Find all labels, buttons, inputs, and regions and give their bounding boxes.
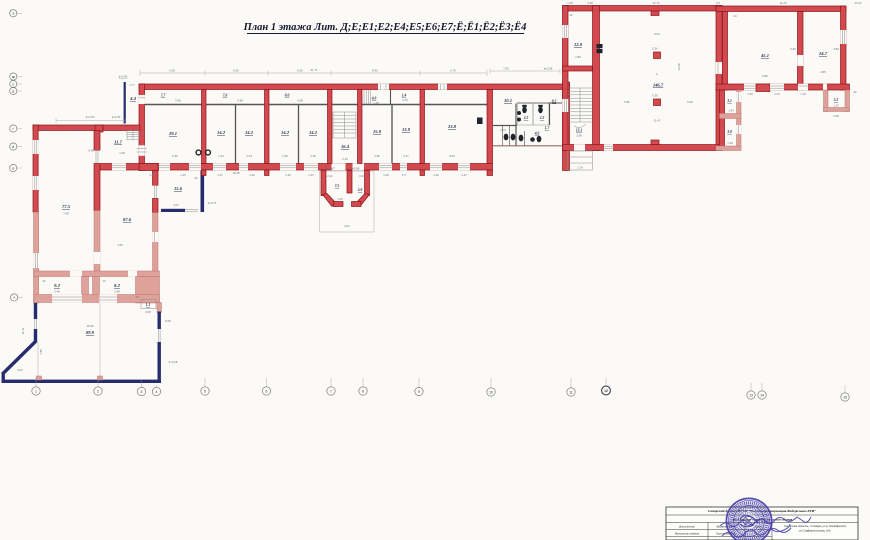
- svg-text:Должность: Должность: [678, 525, 695, 529]
- svg-text:18.28: 18.28: [233, 171, 240, 175]
- svg-text:3.02: 3.02: [17, 368, 23, 372]
- svg-text:15.8: 15.8: [373, 129, 382, 134]
- svg-text:2.70: 2.70: [500, 128, 506, 132]
- svg-text:13: 13: [749, 393, 753, 397]
- svg-text:2.41: 2.41: [327, 174, 333, 178]
- svg-text:5.96: 5.96: [175, 99, 181, 103]
- svg-text:11.41: 11.41: [21, 327, 25, 334]
- svg-text:Самарская область, г.Самара, у: Самарская область, г.Самара, ул.ж Октябр…: [784, 524, 847, 528]
- svg-text:1.28: 1.28: [567, 1, 573, 5]
- svg-text:12.8: 12.8: [574, 42, 583, 47]
- svg-text:7.68: 7.68: [63, 212, 69, 216]
- svg-text:4: 4: [156, 390, 158, 394]
- svg-text:4.07: 4.07: [173, 203, 179, 207]
- svg-text:7.09: 7.09: [503, 67, 509, 71]
- svg-text:12: 12: [102, 279, 106, 283]
- svg-text:8.08: 8.08: [165, 319, 171, 323]
- svg-text:24: 24: [733, 14, 737, 18]
- svg-text:Ж: Ж: [11, 75, 15, 79]
- svg-text:1.30: 1.30: [747, 92, 753, 96]
- svg-text:в=2.88: в=2.88: [351, 167, 360, 171]
- svg-text:3а: 3а: [194, 176, 198, 180]
- svg-text:6.89: 6.89: [762, 74, 768, 78]
- svg-text:0.97: 0.97: [359, 174, 365, 178]
- svg-text:2.14: 2.14: [577, 165, 583, 169]
- svg-text:1.10: 1.10: [800, 92, 806, 96]
- svg-text:6.5: 6.5: [716, 1, 720, 5]
- svg-text:5: 5: [204, 389, 206, 393]
- svg-text:14.2: 14.2: [245, 130, 254, 135]
- svg-text:0.34: 0.34: [652, 47, 658, 51]
- svg-text:13.9: 13.9: [402, 127, 411, 132]
- svg-text:1.47: 1.47: [308, 173, 314, 177]
- svg-text:А: А: [13, 296, 15, 300]
- svg-text:0.36: 0.36: [652, 94, 658, 98]
- svg-text:14.2: 14.2: [309, 130, 318, 135]
- svg-text:1.47: 1.47: [833, 104, 839, 108]
- svg-text:1.77: 1.77: [129, 83, 135, 87]
- svg-text:2.96: 2.96: [374, 154, 380, 158]
- svg-text:ул.Симферопольская, д.№: ул.Симферопольская, д.№: [798, 529, 831, 533]
- svg-text:5.98: 5.98: [297, 99, 303, 103]
- svg-text:12.88: 12.88: [677, 63, 681, 70]
- svg-text:7.5: 7.5: [335, 184, 340, 188]
- svg-text:4.6: 4.6: [534, 132, 540, 136]
- svg-text:1.48: 1.48: [119, 151, 125, 155]
- svg-text:16.4: 16.4: [341, 144, 350, 149]
- svg-text:77.5: 77.5: [62, 204, 71, 209]
- svg-text:2.2: 2.2: [523, 116, 529, 120]
- svg-text:1.44: 1.44: [774, 92, 780, 96]
- svg-text:1: 1: [35, 389, 37, 393]
- svg-text:3: 3: [141, 390, 143, 394]
- svg-text:8.2: 8.2: [114, 283, 120, 288]
- svg-text:11.7: 11.7: [114, 140, 122, 145]
- svg-text:10.1: 10.1: [504, 98, 512, 103]
- svg-text:1.47: 1.47: [461, 173, 467, 177]
- svg-text:14.2: 14.2: [281, 130, 290, 135]
- svg-text:8.90: 8.90: [372, 69, 378, 73]
- svg-text:2.45: 2.45: [310, 154, 316, 158]
- svg-text:11.47: 11.47: [654, 119, 661, 123]
- svg-text:10.22: 10.22: [855, 1, 862, 5]
- svg-text:14.2: 14.2: [217, 130, 226, 135]
- svg-text:2.68: 2.68: [145, 310, 151, 314]
- svg-text:1.7: 1.7: [545, 126, 550, 130]
- svg-text:12: 12: [604, 389, 608, 393]
- svg-text:1.40: 1.40: [180, 173, 186, 177]
- svg-text:5.35: 5.35: [172, 154, 178, 158]
- svg-text:14: 14: [760, 393, 764, 397]
- svg-text:5.98: 5.98: [237, 99, 243, 103]
- svg-text:6.80: 6.80: [73, 128, 79, 132]
- svg-text:1.47: 1.47: [217, 173, 223, 177]
- svg-text:6.38: 6.38: [587, 1, 593, 5]
- svg-text:1.1: 1.1: [146, 303, 151, 307]
- svg-text:2.88: 2.88: [42, 128, 48, 132]
- svg-text:1.48: 1.48: [149, 173, 155, 177]
- svg-text:1.40: 1.40: [285, 173, 291, 177]
- svg-text:146.7: 146.7: [653, 83, 664, 88]
- svg-text:Б: Б: [12, 166, 14, 170]
- svg-text:7.6: 7.6: [223, 94, 228, 98]
- svg-text:40: 40: [853, 90, 857, 94]
- svg-text:5.90: 5.90: [687, 100, 693, 104]
- svg-text:Начальник отдела: Начальник отдела: [674, 532, 700, 536]
- svg-text:План 1 этажа Лит. Д;Е;Е1;Е2;Е4: План 1 этажа Лит. Д;Е;Е1;Е2;Е4;Е5;Е6;Е7;…: [243, 20, 527, 33]
- svg-text:2.2: 2.2: [539, 116, 545, 120]
- svg-text:1.4: 1.4: [402, 94, 407, 98]
- svg-text:24.7: 24.7: [818, 51, 828, 56]
- svg-text:2.40: 2.40: [402, 98, 408, 102]
- svg-text:10: 10: [489, 390, 493, 394]
- svg-text:9.2: 9.2: [54, 283, 60, 288]
- svg-text:1.25: 1.25: [337, 197, 343, 201]
- svg-text:4.83: 4.83: [833, 47, 839, 51]
- svg-text:5.0: 5.0: [358, 188, 363, 192]
- svg-text:6: 6: [266, 389, 268, 393]
- svg-text:22: 22: [569, 13, 573, 17]
- svg-text:2.89: 2.89: [575, 55, 581, 59]
- svg-text:87.6: 87.6: [123, 217, 132, 222]
- svg-text:1.54: 1.54: [728, 109, 734, 113]
- svg-text:6.30: 6.30: [297, 69, 303, 73]
- svg-text:15.6: 15.6: [174, 186, 183, 191]
- svg-text:12.70: 12.70: [653, 1, 660, 5]
- svg-text:4.0: 4.0: [371, 97, 377, 101]
- svg-text:6.60: 6.60: [790, 47, 796, 51]
- svg-text:13.1: 13.1: [576, 129, 582, 133]
- svg-text:45.1: 45.1: [760, 53, 769, 58]
- svg-text:1.39: 1.39: [727, 141, 733, 145]
- svg-text:2.34: 2.34: [342, 157, 348, 161]
- svg-text:8.2: 8.2: [552, 100, 557, 104]
- svg-text:3.48: 3.48: [54, 290, 60, 294]
- svg-text:7.88: 7.88: [39, 349, 43, 355]
- svg-text:1.40: 1.40: [249, 173, 255, 177]
- svg-text:3.02: 3.02: [344, 224, 350, 228]
- svg-text:0.94: 0.94: [654, 32, 660, 36]
- svg-text:Е: Е: [12, 82, 14, 86]
- svg-text:2.09: 2.09: [833, 114, 839, 118]
- svg-text:6.28: 6.28: [169, 69, 175, 73]
- svg-text:В: В: [12, 145, 14, 149]
- svg-text:5.94: 5.94: [449, 154, 455, 158]
- svg-text:в=2.50: в=2.50: [112, 115, 121, 119]
- svg-text:2.47: 2.47: [403, 154, 409, 158]
- svg-text:11: 11: [569, 390, 573, 394]
- svg-text:7: 7: [330, 389, 332, 393]
- svg-text:в=3.28: в=3.28: [169, 360, 178, 364]
- svg-text:4.4: 4.4: [129, 96, 136, 101]
- svg-text:в=2.75: в=2.75: [208, 201, 217, 205]
- svg-text:6.30: 6.30: [233, 69, 239, 73]
- svg-text:27.1.87: 27.1.87: [325, 167, 335, 171]
- svg-text:3.48: 3.48: [114, 290, 120, 294]
- svg-text:9: 9: [418, 390, 420, 394]
- svg-text:3б: 3б: [135, 295, 139, 299]
- svg-text:15: 15: [843, 395, 847, 399]
- svg-text:1.40: 1.40: [433, 173, 439, 177]
- svg-text:6.70: 6.70: [450, 69, 456, 73]
- svg-text:в=2.88: в=2.88: [544, 67, 553, 71]
- svg-text:0.40: 0.40: [88, 149, 94, 153]
- svg-text:1.40: 1.40: [383, 173, 389, 177]
- svg-text:1.48: 1.48: [373, 101, 379, 105]
- svg-text:20: 20: [42, 279, 46, 283]
- svg-text:3.8: 3.8: [726, 130, 732, 134]
- svg-text:2.45: 2.45: [282, 154, 288, 158]
- svg-text:Д: Д: [12, 89, 14, 93]
- svg-text:3.1: 3.1: [726, 99, 732, 103]
- svg-text:2.98: 2.98: [576, 134, 582, 138]
- svg-text:1.5: 1.5: [402, 173, 406, 177]
- svg-text:2.44: 2.44: [218, 154, 224, 158]
- svg-text:4.85: 4.85: [820, 70, 826, 74]
- svg-text:в=2.50: в=2.50: [86, 115, 95, 119]
- svg-text:5.2: 5.2: [834, 98, 839, 102]
- svg-text:89.9: 89.9: [86, 330, 95, 335]
- svg-text:23.8: 23.8: [447, 124, 457, 129]
- svg-text:31.71: 31.71: [311, 68, 318, 72]
- svg-text:2: 2: [97, 389, 99, 393]
- svg-text:в=2.90: в=2.90: [119, 75, 128, 79]
- svg-text:5.86: 5.86: [624, 100, 630, 104]
- svg-text:8.0: 8.0: [285, 94, 290, 98]
- svg-text:15.50: 15.50: [87, 324, 94, 328]
- svg-text:7.7: 7.7: [161, 94, 166, 98]
- svg-text:8: 8: [362, 389, 364, 393]
- svg-text:2.44: 2.44: [246, 154, 252, 158]
- svg-text:11.28: 11.28: [780, 1, 787, 5]
- svg-text:29.1: 29.1: [168, 131, 177, 136]
- svg-text:4.55: 4.55: [117, 243, 123, 247]
